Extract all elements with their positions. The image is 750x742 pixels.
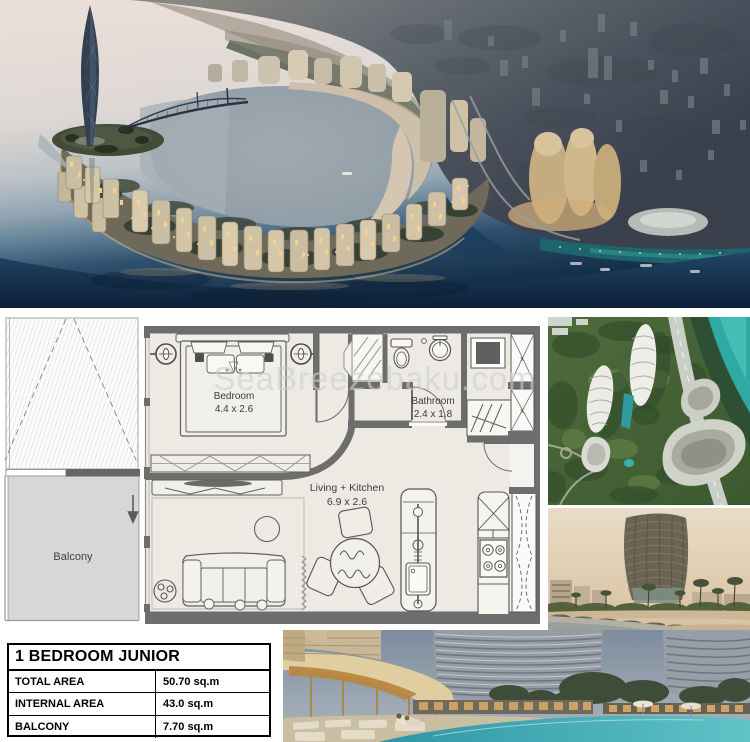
svg-text:4.4 x 2.6: 4.4 x 2.6 — [215, 404, 254, 415]
svg-text:Balcony: Balcony — [53, 551, 93, 563]
svg-text:6.9 x 2.6: 6.9 x 2.6 — [327, 496, 367, 508]
svg-text:x: x — [520, 408, 524, 415]
svg-text:SeaBreezebaku.com: SeaBreezebaku.com — [213, 360, 536, 397]
svg-text:2.4 x 1.8: 2.4 x 1.8 — [414, 409, 453, 420]
svg-text:Living + Kitchen: Living + Kitchen — [310, 482, 385, 494]
svg-text:Bathroom: Bathroom — [411, 396, 454, 407]
